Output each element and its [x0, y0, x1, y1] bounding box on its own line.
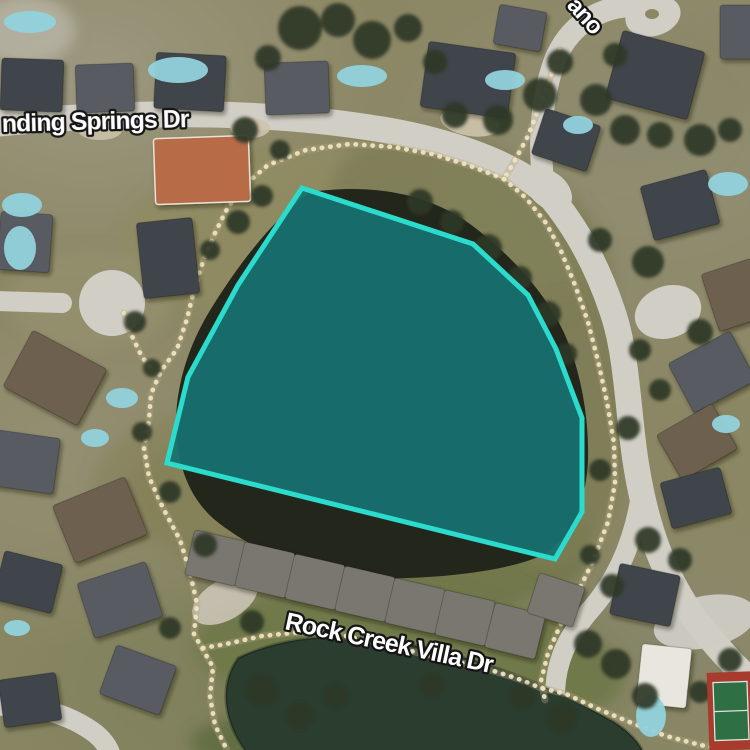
swimming-pool [712, 415, 740, 433]
tree [616, 416, 640, 440]
tree [632, 683, 658, 709]
tree [226, 210, 250, 234]
pavement-pad [645, 9, 659, 19]
tree [324, 684, 348, 708]
tree [632, 246, 664, 278]
swimming-pool [81, 429, 109, 447]
house-roof [720, 5, 750, 59]
tree [240, 610, 264, 634]
tree [353, 21, 391, 59]
tree [483, 105, 513, 135]
tree [394, 14, 422, 42]
swimming-pool [4, 226, 36, 270]
house-roof [99, 645, 177, 716]
tree [159, 481, 181, 503]
tree [421, 675, 443, 697]
tree [321, 3, 355, 37]
swimming-pool [337, 65, 387, 87]
tree [278, 6, 322, 50]
tree [247, 675, 277, 705]
house-roof [0, 58, 64, 112]
tree [251, 185, 273, 207]
swimming-pool [485, 70, 525, 90]
house-roof [0, 430, 61, 494]
tree [580, 545, 600, 565]
tree [523, 78, 557, 112]
tree [610, 115, 640, 145]
swimming-pool [4, 620, 30, 636]
tree [547, 49, 573, 75]
tree [270, 140, 290, 160]
tree [232, 117, 258, 143]
house-roof [77, 561, 163, 638]
swimming-pool [563, 116, 593, 134]
tree [159, 617, 181, 639]
map-canvas: nding Springs DranoRock Creek Villa Dr [0, 0, 750, 750]
tree [423, 50, 447, 74]
house-roof [668, 331, 750, 413]
tree [718, 648, 742, 672]
tree [684, 124, 716, 156]
swimming-pool [106, 388, 138, 408]
satellite-map: nding Springs DranoRock Creek Villa Dr [0, 0, 750, 750]
swimming-pool [708, 172, 748, 196]
swimming-pool [148, 57, 208, 83]
tree [442, 102, 468, 128]
tree [124, 311, 146, 333]
tree [407, 189, 433, 215]
road [0, 301, 62, 303]
house-roof [153, 135, 250, 204]
tree [193, 533, 217, 557]
tree [647, 122, 673, 148]
tree [255, 45, 281, 71]
tree [600, 574, 624, 598]
tree [635, 527, 661, 553]
tree [629, 339, 651, 361]
tree [649, 379, 671, 401]
tree [287, 703, 313, 729]
tree [440, 210, 464, 234]
house-roof [0, 550, 63, 613]
tree [580, 84, 612, 116]
house-roof [75, 63, 135, 113]
house-roof [660, 467, 732, 529]
house-roof [136, 217, 200, 298]
tree [574, 630, 602, 658]
house-roof [493, 4, 547, 52]
tree [687, 319, 713, 345]
swimming-pool [2, 193, 42, 217]
tree [132, 422, 152, 442]
tree [601, 649, 631, 679]
tennis-court [707, 671, 750, 750]
house-roof [701, 258, 750, 331]
tree [603, 43, 627, 67]
tree [718, 118, 742, 142]
swimming-pool [4, 11, 56, 33]
tree [548, 704, 576, 732]
tree [143, 359, 161, 377]
tree [200, 240, 220, 260]
tree [588, 228, 612, 252]
tree [510, 684, 534, 708]
tree [668, 548, 692, 572]
street-label-winding-springs-dr: nding Springs Dr [1, 105, 190, 138]
tree [589, 459, 611, 481]
recreation-layer [707, 671, 750, 750]
house-roof [0, 672, 62, 728]
